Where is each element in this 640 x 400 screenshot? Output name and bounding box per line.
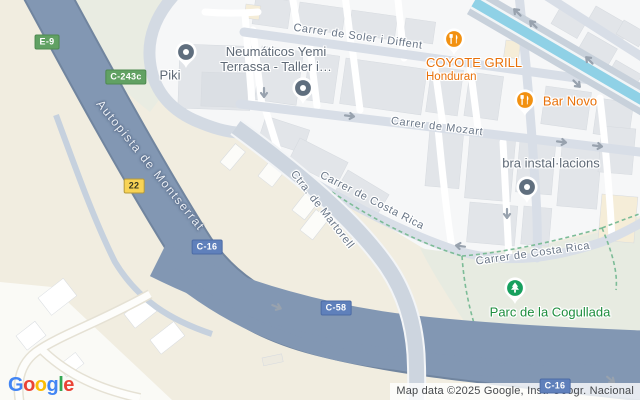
google-logo-letter: o: [35, 374, 47, 396]
google-logo-letter: g: [47, 374, 59, 396]
poi-pin-piki[interactable]: [173, 40, 199, 75]
google-logo[interactable]: Google: [8, 374, 74, 397]
poi-pin-neumaticos[interactable]: [290, 76, 316, 111]
map-base: [0, 0, 640, 400]
google-logo-letter: o: [23, 374, 35, 396]
route-badge-22: 22: [124, 179, 145, 194]
google-logo-letter: e: [63, 374, 74, 396]
poi-pin-bar-novo[interactable]: [512, 88, 538, 123]
map-attribution: Map data ©2025 Google, Inst. Geogr. Naci…: [390, 383, 640, 400]
poi-pin-parc-cogullada[interactable]: [502, 276, 528, 311]
poi-pin-coyote-grill[interactable]: [441, 27, 467, 62]
route-badge-c-58: C-58: [321, 301, 352, 316]
route-badge-e-9: E-9: [35, 35, 60, 50]
poi-pin-bra-installacions[interactable]: [514, 175, 540, 210]
route-badge-c-16: C-16: [540, 379, 571, 394]
google-logo-letter: G: [8, 374, 23, 396]
map-canvas[interactable]: Google Map data ©2025 Google, Inst. Geog…: [0, 0, 640, 400]
route-badge-c-16: C-16: [192, 240, 223, 255]
route-badge-c-243c: C-243c: [105, 70, 146, 85]
